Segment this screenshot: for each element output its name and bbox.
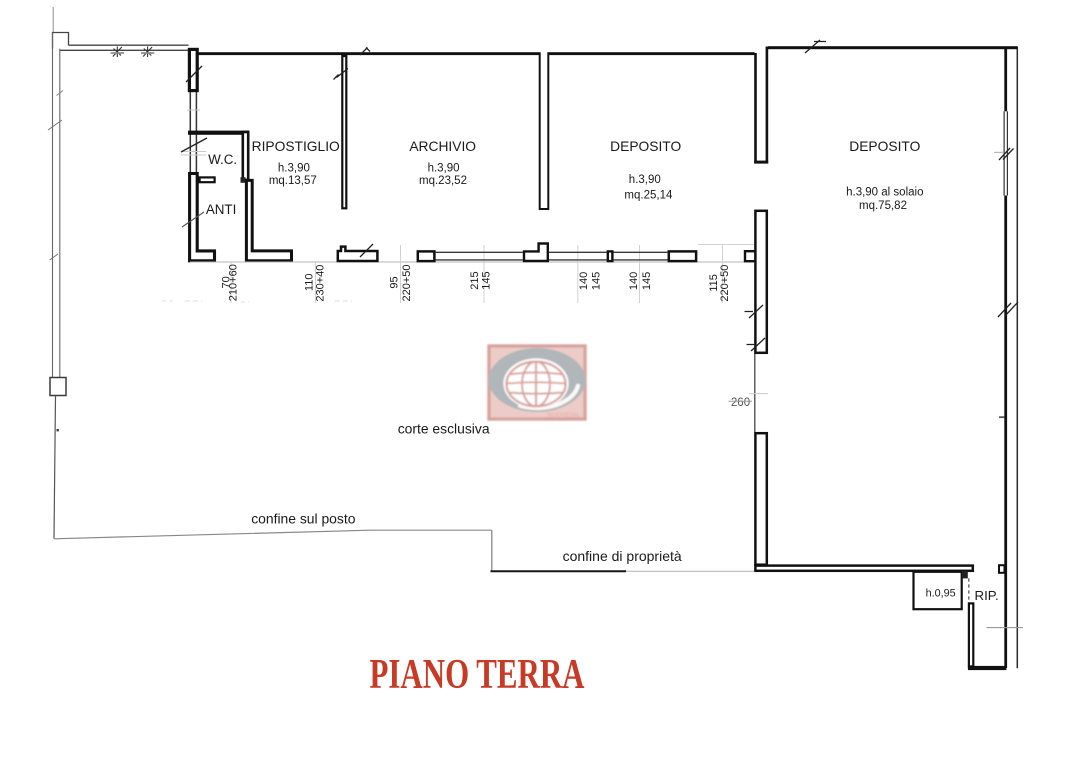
svg-text:145: 145: [480, 271, 492, 289]
svg-text:h.3,90: h.3,90: [278, 162, 310, 174]
svg-text:NUOVEDIL: NUOVEDIL: [547, 412, 581, 419]
svg-text:h.0,95: h.0,95: [926, 587, 956, 599]
svg-text:h.3,90 al solaio: h.3,90 al solaio: [846, 187, 923, 199]
svg-text:145: 145: [641, 272, 653, 290]
svg-text:mq.75,82: mq.75,82: [859, 200, 907, 212]
svg-text:h.3,90: h.3,90: [629, 174, 661, 186]
svg-text:confine di proprietà: confine di proprietà: [563, 548, 682, 564]
svg-text:95: 95: [389, 276, 401, 288]
svg-text:140: 140: [628, 272, 640, 290]
svg-text:corte esclusiva: corte esclusiva: [398, 421, 490, 437]
svg-text:RIPOSTIGLIO: RIPOSTIGLIO: [252, 139, 340, 154]
svg-text:ARCHIVIO: ARCHIVIO: [409, 139, 476, 154]
svg-text:confine sul posto: confine sul posto: [251, 511, 356, 527]
svg-text:220+50: 220+50: [719, 265, 731, 302]
svg-text:h.3,90: h.3,90: [428, 162, 460, 174]
svg-text:215: 215: [469, 271, 481, 289]
svg-text:220+50: 220+50: [401, 264, 413, 301]
svg-text:mq.13,57: mq.13,57: [269, 175, 317, 187]
svg-text:DEPOSITO: DEPOSITO: [849, 139, 920, 154]
svg-text:145: 145: [591, 272, 603, 290]
svg-text:mq.25,14: mq.25,14: [624, 189, 673, 201]
svg-text:RIP.: RIP.: [975, 588, 999, 603]
svg-text:DEPOSITO: DEPOSITO: [610, 139, 681, 154]
svg-text:mq.23,52: mq.23,52: [419, 175, 467, 187]
svg-text:210+60: 210+60: [227, 264, 239, 301]
svg-text:140: 140: [578, 272, 590, 290]
svg-text:ANTI: ANTI: [206, 202, 237, 217]
svg-text:PIANO TERRA: PIANO TERRA: [370, 651, 585, 698]
svg-text:260: 260: [731, 397, 750, 409]
svg-text:W.C.: W.C.: [208, 152, 237, 167]
svg-text:230+40: 230+40: [314, 265, 326, 302]
